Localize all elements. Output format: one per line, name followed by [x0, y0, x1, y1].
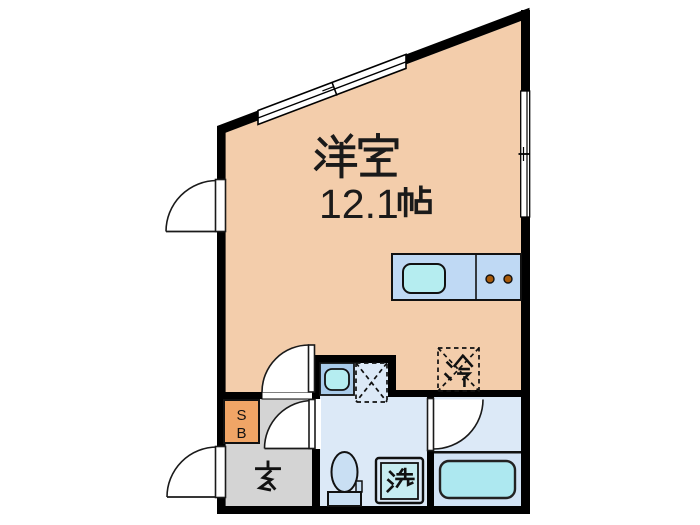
svg-text:12.1: 12.1	[319, 181, 399, 227]
svg-text:S: S	[236, 407, 246, 424]
svg-text:B: B	[236, 425, 246, 442]
